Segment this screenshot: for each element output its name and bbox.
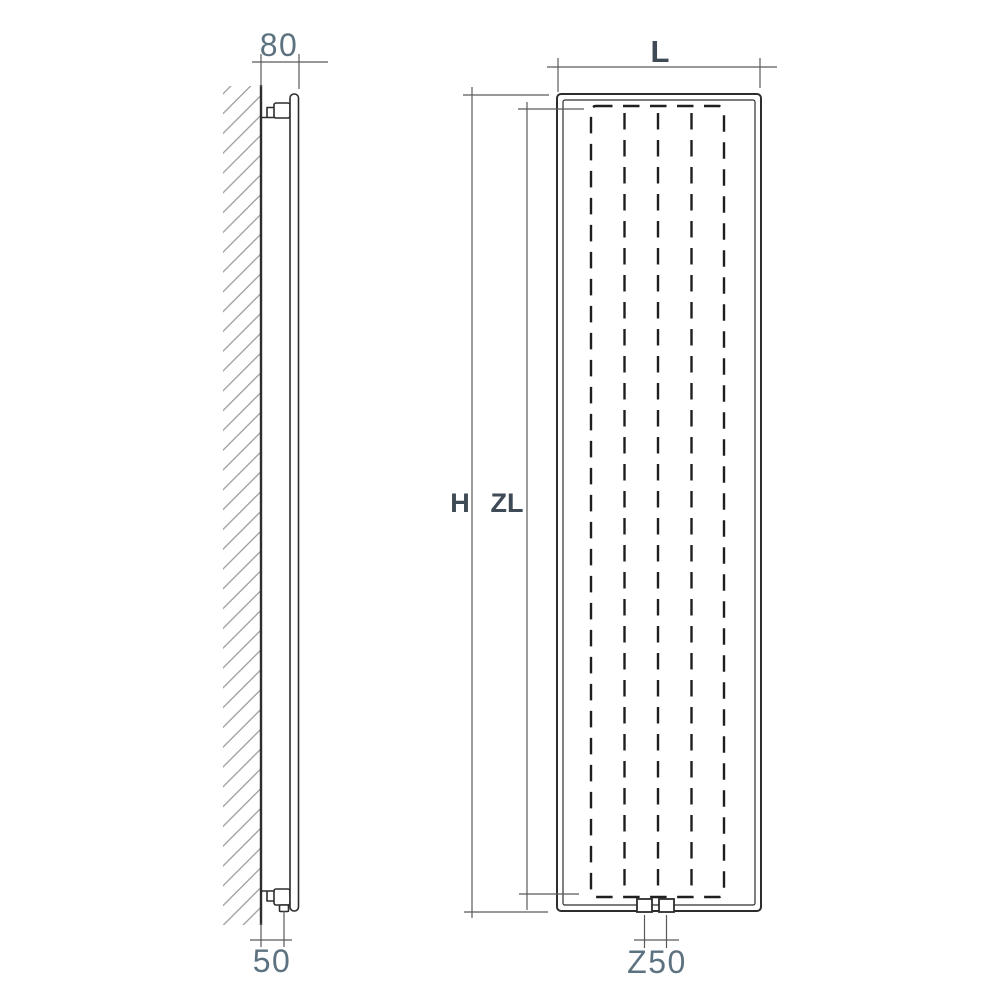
mounting-bracket-top [262,103,290,118]
dim-label-L: L [651,34,670,69]
bottom-pipe-stub [280,905,289,912]
wall-hatching [223,86,261,925]
dim-label-ZL: ZL [491,488,524,518]
connection-left [637,899,652,912]
dimension-depth-80: 80 [252,27,328,89]
dimension-width-L: L [547,34,777,92]
side-view: 80 50 [223,27,328,979]
front-view: L H ZL Z50 [450,34,777,980]
mounting-bracket-bottom [262,889,290,905]
dim-label-50: 50 [253,943,292,979]
dim-label-80: 80 [260,27,299,63]
dimension-connection-Z50: Z50 [627,915,687,980]
dim-label-Z50: Z50 [627,944,687,980]
radiator-dimension-drawing: 80 50 [0,0,1000,1000]
dim-label-H: H [450,488,470,518]
technical-drawing-canvas: 80 50 [0,0,1000,1000]
radiator-panel-profile [290,94,299,911]
connection-right [659,899,674,912]
